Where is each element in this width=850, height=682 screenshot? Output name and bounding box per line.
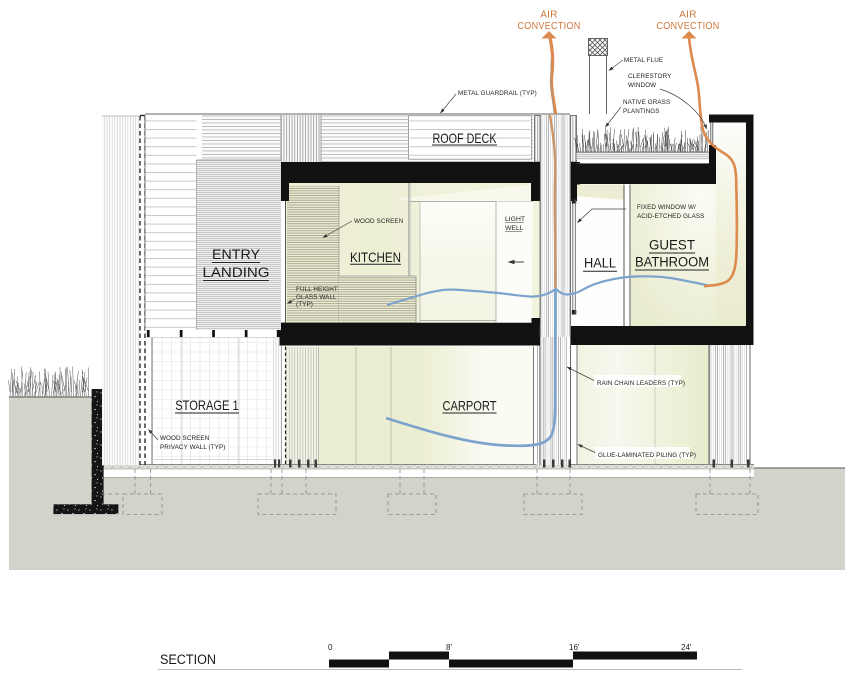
svg-text:16': 16' xyxy=(569,643,580,652)
svg-text:PRIVACY WALL (TYP): PRIVACY WALL (TYP) xyxy=(160,444,225,451)
svg-text:8': 8' xyxy=(446,643,452,652)
svg-text:RAIN CHAIN LEADERS (TYP): RAIN CHAIN LEADERS (TYP) xyxy=(597,380,685,387)
svg-text:LANDING: LANDING xyxy=(203,265,270,280)
svg-text:METAL FLUE: METAL FLUE xyxy=(624,57,663,64)
svg-text:KITCHEN: KITCHEN xyxy=(350,250,401,265)
svg-text:ROOF DECK: ROOF DECK xyxy=(433,130,498,146)
svg-text:GUEST: GUEST xyxy=(649,238,695,253)
svg-text:CONVECTION: CONVECTION xyxy=(657,21,720,32)
svg-text:NATIVE GRASS: NATIVE GRASS xyxy=(623,99,670,106)
svg-text:(TYP): (TYP) xyxy=(296,301,313,308)
svg-text:AIR: AIR xyxy=(679,10,697,21)
svg-text:METAL GUARDRAIL (TYP): METAL GUARDRAIL (TYP) xyxy=(458,90,537,97)
svg-text:FULL HEIGHT: FULL HEIGHT xyxy=(296,286,338,293)
svg-text:CARPORT: CARPORT xyxy=(443,398,497,414)
svg-text:WELL: WELL xyxy=(505,225,524,232)
svg-text:BATHROOM: BATHROOM xyxy=(635,255,709,270)
svg-text:WINDOW: WINDOW xyxy=(628,82,656,89)
svg-text:CONVECTION: CONVECTION xyxy=(518,21,581,32)
svg-text:HALL: HALL xyxy=(584,256,616,271)
svg-text:CLERESTORY: CLERESTORY xyxy=(628,73,672,80)
svg-text:STORAGE 1: STORAGE 1 xyxy=(175,397,239,413)
svg-text:AIR: AIR xyxy=(540,10,558,21)
svg-text:GLUE-LAMINATED PILING (TYP): GLUE-LAMINATED PILING (TYP) xyxy=(598,452,696,459)
svg-text:WOOD SCREEN: WOOD SCREEN xyxy=(160,435,210,442)
svg-text:24': 24' xyxy=(681,643,692,652)
svg-text:WOOD SCREEN: WOOD SCREEN xyxy=(354,218,404,225)
svg-text:PLANTINGS: PLANTINGS xyxy=(623,108,660,115)
svg-text:FIXED WINDOW W/: FIXED WINDOW W/ xyxy=(637,204,696,211)
svg-text:0: 0 xyxy=(328,643,333,652)
svg-text:LIGHT: LIGHT xyxy=(505,216,525,223)
svg-text:ACID-ETCHED GLASS: ACID-ETCHED GLASS xyxy=(637,213,704,220)
svg-text:GLASS WALL: GLASS WALL xyxy=(296,294,337,301)
svg-text:SECTION: SECTION xyxy=(160,652,216,667)
svg-text:ENTRY: ENTRY xyxy=(212,247,260,262)
